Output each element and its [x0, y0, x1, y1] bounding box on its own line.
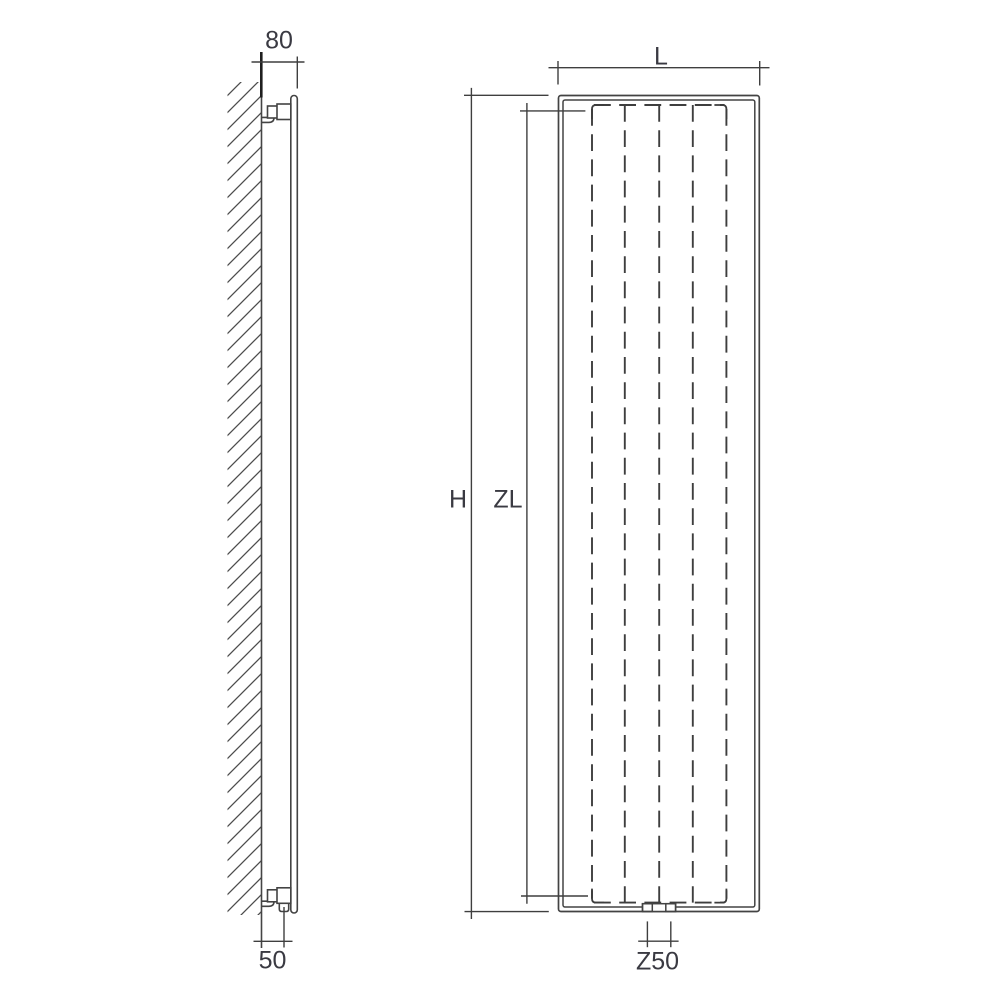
svg-text:50: 50 [259, 947, 287, 975]
svg-text:80: 80 [265, 27, 293, 55]
svg-text:L: L [654, 43, 668, 71]
svg-text:Z50: Z50 [636, 948, 679, 976]
svg-text:ZL: ZL [493, 486, 522, 514]
svg-text:H: H [449, 486, 467, 514]
